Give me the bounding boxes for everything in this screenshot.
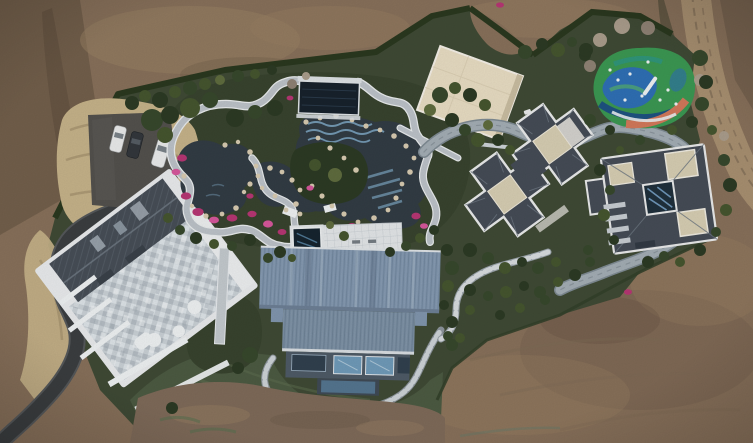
aerial-photo-canvas: Aerial drone photograph of a landscaped … — [0, 0, 753, 443]
vignette — [0, 0, 753, 443]
aerial-photo: Top-down aerial view of a private estate… — [0, 0, 753, 443]
